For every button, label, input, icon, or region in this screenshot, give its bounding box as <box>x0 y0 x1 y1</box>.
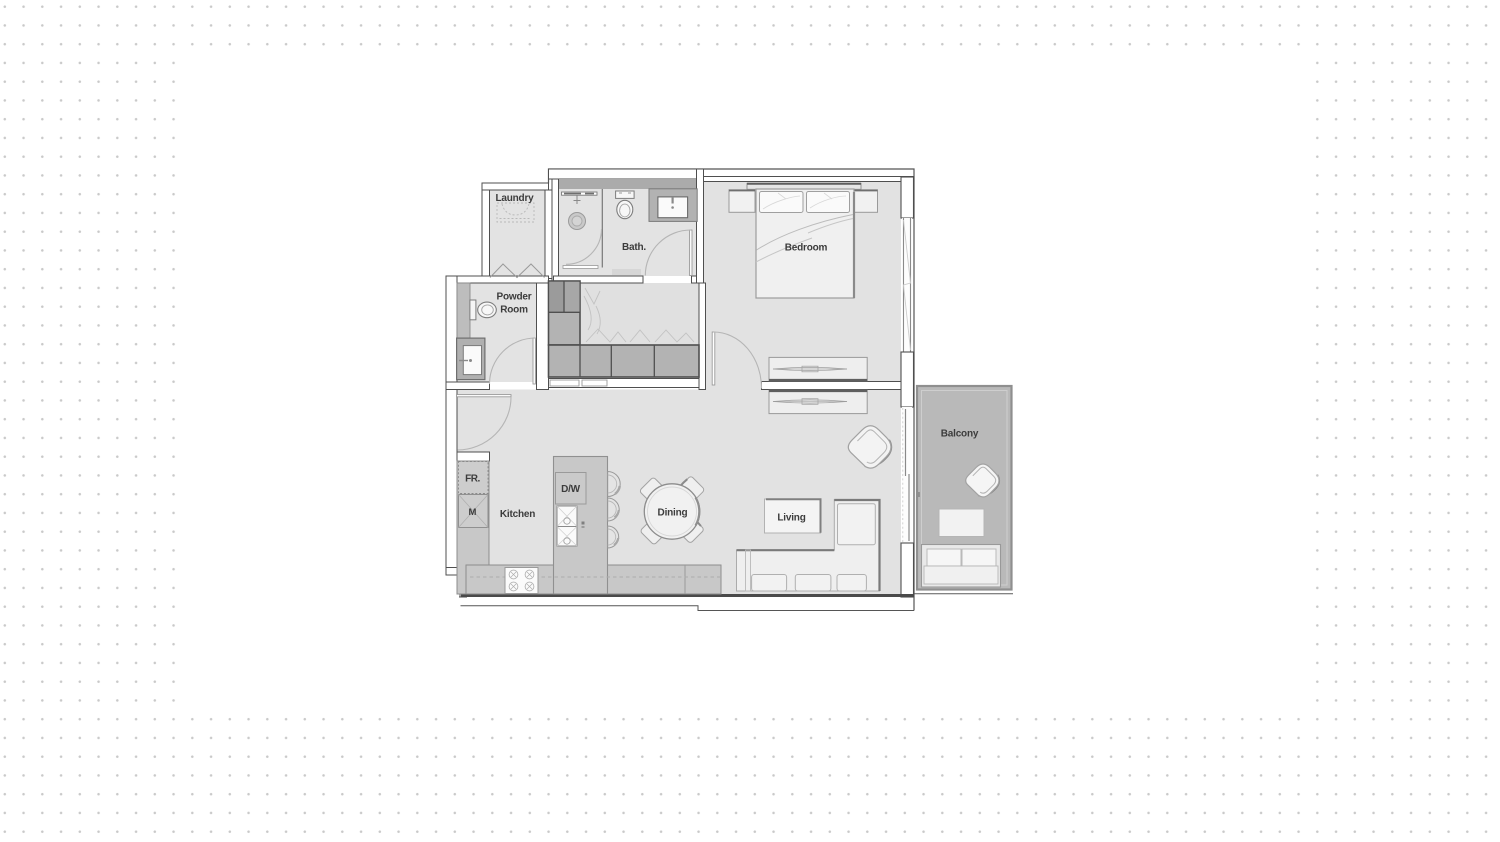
svg-text:Balcony: Balcony <box>941 429 979 440</box>
svg-text:Living: Living <box>777 513 805 524</box>
svg-text:D/W: D/W <box>561 484 581 495</box>
svg-text:Kitchen: Kitchen <box>500 509 535 520</box>
svg-text:FR.: FR. <box>465 474 480 485</box>
svg-text:Powder: Powder <box>497 292 532 303</box>
svg-text:Dining: Dining <box>658 508 688 519</box>
svg-text:Bath.: Bath. <box>622 242 646 253</box>
svg-text:Laundry: Laundry <box>495 193 534 204</box>
svg-text:Room: Room <box>500 305 528 316</box>
svg-text:M: M <box>469 507 477 518</box>
svg-text:Bedroom: Bedroom <box>785 243 828 254</box>
